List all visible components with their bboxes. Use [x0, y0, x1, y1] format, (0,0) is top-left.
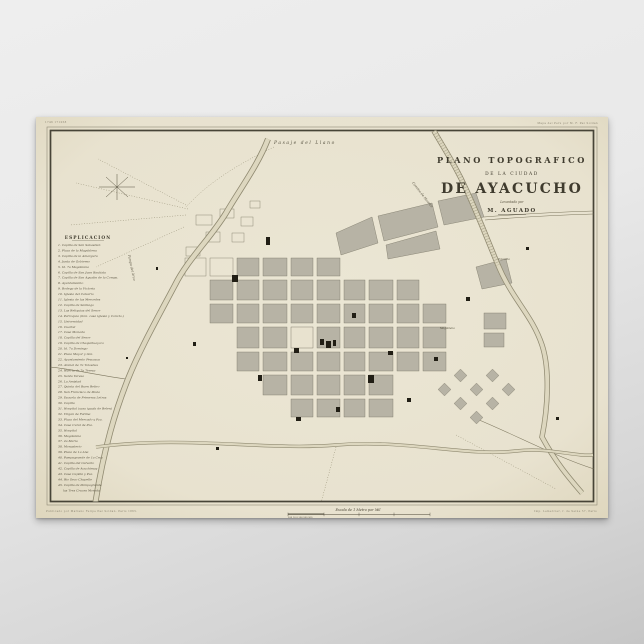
church-symbol: [368, 375, 374, 383]
legend-item: 10. Iglesia del Calvario: [58, 292, 94, 296]
church-symbol: [466, 297, 470, 301]
church-symbol: [556, 417, 559, 420]
church-symbol: [352, 313, 356, 318]
legend-item: 4. Junta de Gobierno: [57, 259, 90, 263]
church-symbol: [296, 417, 301, 421]
city-block: [344, 399, 365, 417]
legend-item: 40. Pampagrande de 1a Cruz: [57, 456, 103, 460]
legend-item: 23. Arenal de 7a Tolosbus: [57, 363, 98, 367]
church-symbol: [294, 348, 299, 353]
legend-item: 11. Iglesia de las Mercedes: [58, 298, 101, 302]
label-totorilla: Totorilla: [498, 257, 510, 261]
city-block: [423, 304, 446, 323]
map-title-line3: DE AYACUCHO: [441, 181, 583, 197]
city-block: [237, 280, 259, 300]
legend-item: 25. Santa Teresa: [57, 374, 84, 378]
city-block: [317, 258, 340, 276]
map-title-author: M. AGUADO: [487, 208, 536, 214]
city-block: [423, 327, 446, 348]
city-block: [263, 280, 287, 300]
city-block: [210, 280, 233, 300]
legend-item: 26. La Amistad: [57, 379, 81, 383]
city-block: [317, 304, 340, 323]
city-block: [344, 352, 365, 371]
legend-item: 33. Plaza del Mercado y Pza.: [58, 417, 103, 421]
legend-item: 1. Capilla de San Sebastian: [58, 243, 100, 247]
city-block: [397, 327, 419, 348]
legend-item: las Tres Cruces Morada: [63, 488, 100, 492]
city-block: [237, 258, 259, 276]
legend-item: 9. Bodega de la Victoria: [58, 287, 95, 291]
city-block: [291, 375, 313, 395]
legend-item: 41. Capilla del Calvario: [57, 461, 94, 465]
church-symbol: [232, 275, 238, 282]
church-symbol: [326, 341, 331, 348]
legend-item: 45. Capilla de Pampagrande: [57, 483, 102, 487]
church-symbol: [320, 339, 324, 345]
church-symbol: [258, 375, 262, 381]
church-symbol: [388, 351, 393, 355]
city-block: [369, 327, 393, 348]
plaza-block: [291, 327, 313, 348]
label-pasaje-del-llano: Pasaje del Llano: [273, 141, 336, 146]
church-symbol: [526, 247, 529, 250]
legend-item: 21. Plaza Mayor y Gra.: [57, 352, 93, 356]
church-symbol: [336, 407, 340, 412]
legend-item: 39. Plaza de 1a Ana: [58, 450, 89, 454]
city-block: [397, 352, 419, 371]
city-block: [263, 375, 287, 395]
legend-title: ESPLICACION: [65, 236, 112, 241]
legend-item: 29. Escuela de Primeras Letras: [57, 396, 107, 400]
legend-item: 19. Capilla de Chaquihuaycco: [58, 341, 104, 345]
legend-item: 3. Capilla de la Amargura: [58, 254, 98, 258]
legend-item: 6. Capilla de San Juan Bautista: [58, 270, 106, 274]
legend-item: 17. Casa Moneda: [58, 330, 85, 334]
legend-item: 35. Hospital: [58, 428, 77, 432]
legend-item: 15. Universidad: [58, 319, 83, 323]
church-symbol: [333, 340, 336, 346]
legend-item: 34. Casa Cural de Pza.: [58, 423, 93, 427]
city-block: [210, 304, 233, 323]
church-symbol: [216, 447, 219, 450]
printer-imprint: Imp. Lemercier, r. de Seine 57, Paris: [534, 509, 597, 513]
legend-item: 30. Capilla: [58, 401, 75, 405]
legend-item: 20. Id. 7a Domingo: [57, 347, 88, 351]
legend-item: 13. Las Reliquias del Senor: [58, 308, 101, 312]
city-block: [423, 352, 446, 371]
legend-item: 32. Virgen de Fatima: [58, 412, 91, 416]
legend-item: 22. Ayuntamiento Pescasca: [57, 357, 100, 361]
legend-item: 44. Rio Seco Chapelle: [57, 477, 92, 481]
church-symbol: [156, 267, 158, 270]
city-block: [317, 375, 340, 395]
city-block: [263, 327, 287, 348]
city-block: [263, 352, 287, 371]
legend-item: 5. Id. 7a Magdalena: [58, 265, 89, 269]
label-magdalena: Magdalena: [439, 326, 455, 330]
map-title-line2: DE LA CIUDAD: [485, 172, 539, 177]
city-block: [263, 304, 287, 323]
legend-item: 42. Capilla de Acuchimay: [57, 466, 98, 470]
city-block: [317, 280, 340, 300]
city-block: [237, 327, 259, 348]
city-block: [291, 304, 313, 323]
legend-item: 8. Ayuntamiento: [58, 281, 83, 285]
city-block: [397, 304, 419, 323]
map-title-line4: Levantado por: [499, 200, 524, 204]
legend-item: 18. Capilla del Senor: [58, 336, 91, 340]
legend-item: 24. Huerta de 7a Teresa: [57, 368, 96, 372]
city-block: [291, 280, 313, 300]
legend-item: 7. Capilla de San Agustin de la Compa.: [58, 276, 118, 280]
map-title-line1: PLANO TOPOGRAFICO: [437, 155, 587, 165]
city-block: [344, 280, 365, 300]
city-block: [237, 304, 259, 323]
legend-item: 12. Capilla de Santiago: [58, 303, 94, 307]
plate-number: 1746 171058: [45, 120, 67, 124]
city-block: [397, 280, 419, 300]
legend-item: 37. 2a Maria: [58, 439, 78, 443]
scale-label: Escala de 1 Metro por Mil: [335, 508, 381, 512]
city-block: [369, 280, 393, 300]
legend-item: 38. Monasterio: [58, 445, 82, 449]
city-block: [291, 399, 313, 417]
city-block: [369, 399, 393, 417]
church-symbol: [434, 357, 438, 361]
legend-item: 31. Hospital (casa iguala de Belen): [58, 407, 113, 411]
map-canvas: 1746 171058 Mapa del Peru por M. F. Paz …: [36, 117, 608, 518]
legend-item: 2. Plaza de la Magdalena: [57, 248, 97, 252]
legend-item: 16. Cuartel: [58, 325, 75, 329]
legend-item: 14. Parroquia (ibra. casa iglesia y Conv…: [58, 314, 125, 318]
map-poster: 1746 171058 Mapa del Peru por M. F. Paz …: [36, 117, 608, 518]
church-symbol: [407, 398, 411, 402]
church-symbol: [126, 357, 128, 359]
legend-item: 43. Casa Capilla y Pza.: [57, 472, 93, 476]
city-block: [237, 352, 259, 371]
scale-numbers: 100 50 0 100 200 300: [288, 516, 313, 518]
church-symbol: [266, 237, 270, 245]
atlas-reference: Mapa del Peru por M. F. Paz Soldan: [537, 121, 598, 125]
city-block: [344, 327, 365, 348]
publisher-imprint: Publicado por Mariano Felipe Paz Soldan.…: [46, 509, 138, 513]
city-block: [369, 304, 393, 323]
legend-item: 28. San Francisco de Paula: [57, 390, 100, 394]
city-block: [291, 352, 313, 371]
city-block: [291, 258, 313, 276]
legend-item: 27. Quinta del Buen Retiro: [57, 385, 100, 389]
city-block: [344, 375, 365, 395]
city-block: [317, 352, 340, 371]
city-block: [263, 258, 287, 276]
page-background: 1746 171058 Mapa del Peru por M. F. Paz …: [0, 0, 644, 644]
church-symbol: [193, 342, 196, 346]
legend-item: 36. Magdalena: [58, 434, 81, 438]
